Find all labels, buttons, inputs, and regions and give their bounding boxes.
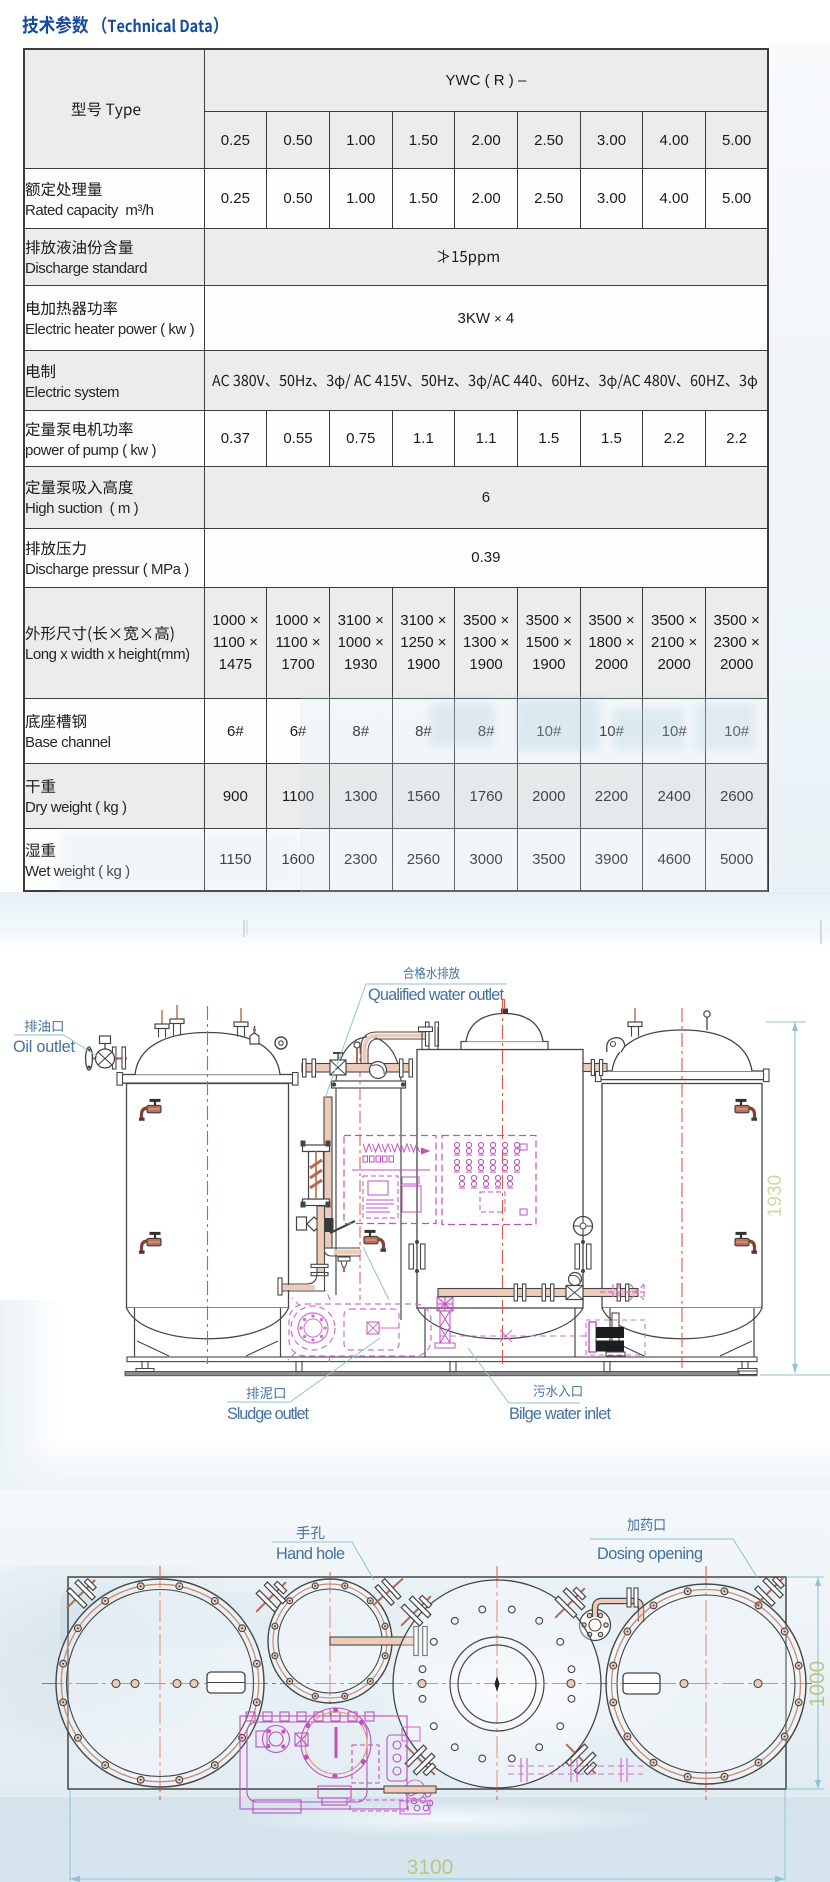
svg-text:Sludge outlet: Sludge outlet: [227, 1405, 309, 1423]
svg-text:Dosing opening: Dosing opening: [597, 1545, 703, 1563]
svg-text:1930: 1930: [765, 1175, 786, 1217]
svg-text:Hand hole: Hand hole: [276, 1545, 345, 1563]
svg-text:Qualified water outlet: Qualified water outlet: [368, 986, 504, 1004]
svg-text:Bilge water inlet: Bilge water inlet: [509, 1405, 611, 1423]
svg-text:1000: 1000: [806, 1661, 829, 1708]
svg-text:3100: 3100: [407, 1856, 454, 1879]
svg-text:Oil outlet: Oil outlet: [13, 1038, 75, 1056]
